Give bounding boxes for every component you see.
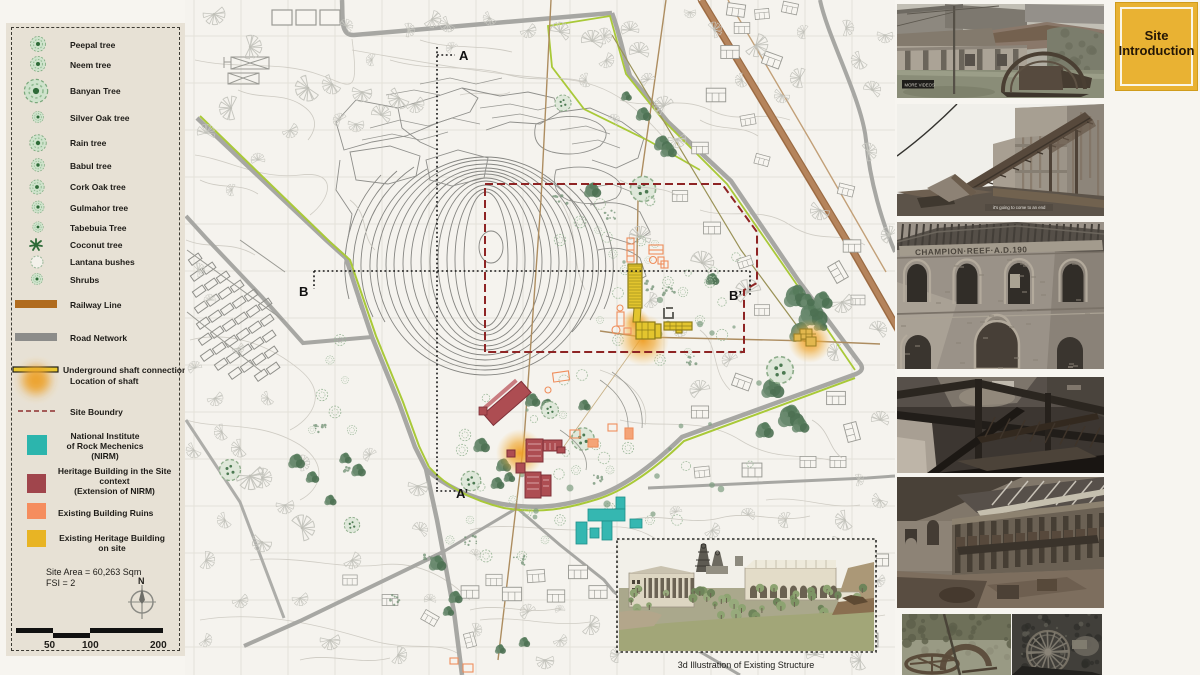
svg-text:A’: A’: [456, 486, 468, 501]
svg-text:B’: B’: [729, 288, 742, 303]
svg-text:B: B: [299, 284, 308, 299]
svg-text:3d Illustration of Existing St: 3d Illustration of Existing Structure: [678, 660, 815, 670]
svg-text:MORE VIDEOS: MORE VIDEOS: [905, 83, 935, 88]
svg-text:it's going to come to an end: it's going to come to an end: [993, 205, 1046, 210]
svg-text:A: A: [459, 48, 469, 63]
